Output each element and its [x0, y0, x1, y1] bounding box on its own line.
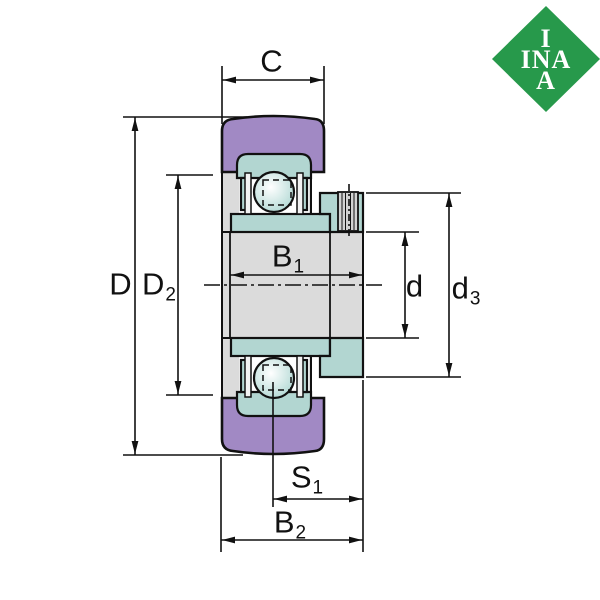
cage-strip — [245, 356, 251, 397]
dim-label-B1: B1 — [272, 241, 304, 272]
inner-ring-bottom — [231, 338, 330, 356]
cage-strip — [297, 356, 303, 397]
dim-label-B2: B2 — [274, 507, 306, 538]
dim-label-D2: D2 — [142, 269, 176, 300]
cage-strip — [297, 173, 303, 214]
dim-label-D: D — [109, 269, 132, 300]
ball-bottom — [254, 358, 294, 398]
ball-top — [254, 172, 294, 212]
drawing-canvas: C D D2 B1 d d3 S1 B2 I INA A — [0, 0, 600, 600]
ina-logo: I INA A — [488, 2, 600, 116]
set-screw — [338, 192, 358, 231]
inner-ring-top — [231, 214, 330, 232]
dim-label-d: d — [406, 271, 424, 302]
dim-label-S1: S1 — [291, 462, 323, 493]
cage-strip — [245, 173, 251, 214]
dim-label-C: C — [260, 46, 283, 77]
dim-label-d3: d3 — [452, 273, 481, 304]
set-screw-body — [338, 192, 358, 231]
ina-logo-text-line3: A — [488, 68, 600, 94]
